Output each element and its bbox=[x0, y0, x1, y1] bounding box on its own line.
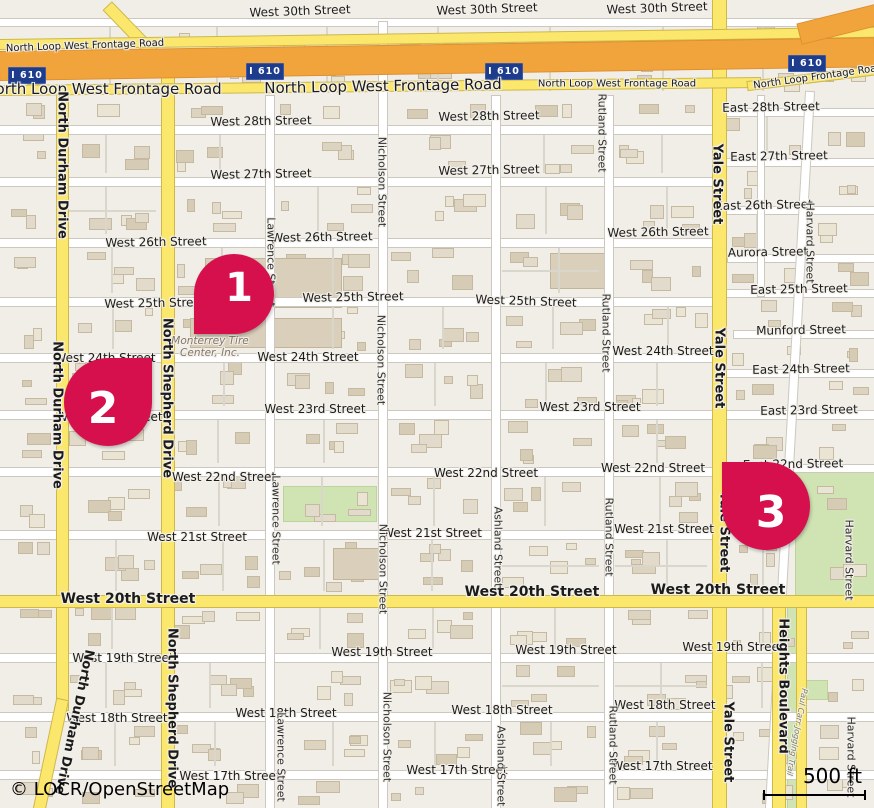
street-label-west-21st-street: West 21st Street bbox=[614, 522, 714, 536]
map-canvas[interactable]: I 610I 610I 610I 610West 30th StreetWest… bbox=[0, 0, 874, 808]
poi-label-line1: Monterrey Tire bbox=[171, 335, 248, 347]
building bbox=[29, 514, 44, 528]
building bbox=[452, 275, 473, 290]
street-label-yale-street: Yale Street bbox=[710, 144, 725, 225]
building bbox=[27, 433, 51, 445]
building bbox=[177, 264, 185, 278]
building bbox=[516, 214, 536, 228]
building bbox=[513, 502, 528, 512]
street-label-west-19th-street: West 19th Street bbox=[682, 640, 783, 654]
building bbox=[82, 747, 99, 759]
street-label-west-23rd-street: West 23rd Street bbox=[264, 402, 365, 416]
building bbox=[88, 633, 100, 646]
building bbox=[676, 307, 686, 317]
building bbox=[679, 512, 698, 523]
marker-number: 2 bbox=[88, 383, 119, 434]
building bbox=[620, 149, 638, 159]
marker-number: 3 bbox=[756, 487, 787, 538]
building bbox=[344, 749, 365, 757]
street-label-west-22nd-street: West 22nd Street bbox=[434, 466, 538, 480]
building bbox=[429, 137, 441, 150]
street-label-west-27th-street: West 27th Street bbox=[210, 166, 311, 182]
alley-road bbox=[550, 720, 552, 766]
building bbox=[651, 277, 671, 290]
building bbox=[628, 610, 651, 620]
street-label-harvard-street: Harvard Street bbox=[804, 202, 817, 283]
building bbox=[325, 382, 334, 394]
building bbox=[82, 144, 100, 157]
map-marker-3[interactable]: 3 bbox=[722, 462, 810, 550]
building bbox=[523, 257, 538, 268]
building bbox=[817, 486, 834, 494]
building bbox=[18, 542, 33, 553]
building bbox=[850, 272, 869, 286]
street-label-lawrence-street: Lawrence Street bbox=[270, 475, 283, 565]
street-label-west-17th-street: West 17th Street bbox=[406, 763, 507, 777]
street-label-ashland-street: Ashland Street bbox=[492, 507, 505, 588]
building bbox=[32, 751, 40, 764]
street-label-harvard-street: Harvard Street bbox=[843, 519, 856, 600]
building bbox=[37, 542, 50, 555]
building bbox=[739, 545, 748, 553]
building-large bbox=[333, 548, 381, 580]
building bbox=[25, 727, 36, 739]
building bbox=[461, 560, 472, 573]
street-label-west-17th-street: West 17th Street bbox=[611, 759, 712, 773]
street-label-north-loop-west-frontage-road: North Loop West Frontage Road bbox=[0, 80, 222, 98]
building bbox=[529, 546, 548, 556]
street-label-west-24th-street: West 24th Street bbox=[612, 344, 713, 358]
building bbox=[391, 488, 411, 496]
building bbox=[411, 444, 427, 453]
building bbox=[322, 142, 342, 151]
building bbox=[695, 313, 708, 327]
street-label-west-26th-street: West 26th Street bbox=[607, 224, 708, 240]
building bbox=[295, 375, 310, 388]
building bbox=[187, 199, 195, 212]
street-label-north-durham-drive: North Durham Drive bbox=[50, 341, 65, 489]
alley-road bbox=[502, 685, 599, 687]
building bbox=[78, 323, 91, 332]
building bbox=[24, 335, 33, 350]
alley-road bbox=[502, 565, 599, 567]
alley-road bbox=[319, 603, 321, 649]
street-label-west-26th-street: West 26th Street bbox=[105, 234, 206, 250]
building bbox=[557, 666, 575, 677]
building bbox=[182, 571, 199, 580]
street-label-west-23rd-street: West 23rd Street bbox=[539, 400, 640, 414]
building bbox=[408, 629, 426, 639]
building bbox=[26, 103, 42, 115]
building bbox=[832, 424, 846, 432]
building bbox=[298, 796, 320, 805]
street-label-north-durham-drive: North Durham Drive bbox=[55, 91, 70, 239]
building bbox=[525, 399, 538, 408]
building bbox=[630, 788, 653, 800]
building bbox=[287, 633, 305, 640]
building bbox=[134, 146, 150, 160]
alley-road bbox=[434, 720, 436, 766]
building bbox=[466, 332, 479, 342]
building bbox=[409, 339, 421, 349]
alley-road bbox=[545, 185, 547, 234]
building bbox=[135, 213, 149, 224]
building bbox=[647, 424, 664, 433]
building bbox=[662, 743, 677, 751]
building bbox=[849, 348, 857, 361]
building bbox=[820, 235, 833, 243]
street-label-west-20th-street: West 20th Street bbox=[651, 582, 786, 598]
map-marker-1[interactable]: 1 bbox=[194, 254, 274, 334]
building bbox=[316, 781, 339, 793]
building bbox=[504, 488, 523, 501]
building bbox=[304, 567, 321, 578]
building bbox=[520, 722, 543, 735]
alley-road bbox=[223, 361, 225, 406]
building bbox=[113, 690, 125, 705]
alley-road bbox=[332, 305, 334, 349]
route-shield-i610: I 610 bbox=[788, 55, 826, 72]
building bbox=[463, 612, 473, 620]
alley-road bbox=[323, 418, 325, 463]
street-label-west-19th-street: West 19th Street bbox=[331, 645, 432, 659]
building bbox=[639, 104, 659, 115]
building bbox=[202, 611, 215, 622]
building bbox=[736, 390, 745, 400]
building bbox=[843, 642, 852, 649]
building bbox=[545, 164, 559, 174]
building bbox=[617, 787, 629, 800]
street-label-west-25th-street: West 25th Street bbox=[302, 289, 403, 305]
alley-road bbox=[209, 661, 211, 708]
building bbox=[305, 504, 321, 517]
building bbox=[407, 270, 418, 283]
alley-road bbox=[105, 133, 107, 173]
scale-indicator: 500 ft bbox=[763, 764, 866, 800]
building bbox=[415, 787, 424, 795]
building bbox=[443, 328, 464, 342]
building bbox=[829, 381, 842, 390]
alley-road bbox=[615, 685, 707, 687]
building bbox=[562, 482, 581, 492]
marker-number: 1 bbox=[225, 265, 253, 311]
street-label-west-28th-street: West 28th Street bbox=[438, 108, 539, 124]
building bbox=[129, 737, 139, 745]
building bbox=[732, 353, 744, 366]
street-label-east-24th-street: East 24th Street bbox=[752, 361, 850, 377]
street-label-west-20th-street: West 20th Street bbox=[61, 591, 196, 607]
alley-road bbox=[434, 361, 436, 406]
street-label-west-19th-street: West 19th Street bbox=[515, 643, 616, 657]
building bbox=[445, 196, 454, 207]
building bbox=[247, 576, 260, 588]
street-label-west-30th-street: West 30th Street bbox=[436, 0, 538, 18]
road-rutland-street bbox=[605, 96, 613, 808]
building bbox=[33, 328, 42, 340]
building bbox=[650, 205, 664, 220]
alley-road bbox=[502, 270, 599, 272]
building bbox=[347, 613, 363, 623]
building bbox=[391, 793, 402, 800]
building bbox=[235, 432, 250, 444]
building bbox=[13, 695, 34, 705]
street-label-east-26th-street: East 26th Street bbox=[715, 197, 813, 213]
street-label-west-21st-street: West 21st Street bbox=[147, 530, 247, 544]
alley-road bbox=[111, 246, 113, 293]
road-ashland-street bbox=[492, 96, 500, 808]
building bbox=[23, 134, 44, 141]
building bbox=[391, 252, 411, 261]
building bbox=[236, 612, 260, 621]
building bbox=[37, 151, 46, 159]
building bbox=[470, 384, 483, 398]
building bbox=[561, 367, 582, 382]
building bbox=[622, 425, 639, 436]
building bbox=[852, 679, 865, 691]
building bbox=[508, 421, 529, 433]
alley-road bbox=[115, 538, 117, 591]
street-label-north-shepherd-drive: North Shepherd Drive bbox=[165, 628, 180, 788]
building bbox=[832, 302, 853, 312]
alley-road bbox=[442, 305, 444, 349]
building bbox=[114, 267, 135, 276]
alley-road bbox=[661, 133, 663, 173]
building bbox=[128, 489, 150, 499]
alley-road bbox=[431, 538, 433, 591]
street-label-west-25th-street: West 25th Street bbox=[104, 295, 205, 311]
street-label-rutland-street: Rutland Street bbox=[596, 93, 609, 172]
building bbox=[89, 218, 112, 230]
building bbox=[344, 693, 353, 706]
building bbox=[118, 555, 134, 569]
building bbox=[533, 742, 552, 754]
street-label-heights-boulevard: Heights Boulevard bbox=[776, 618, 791, 754]
building bbox=[213, 223, 236, 232]
alley-road bbox=[552, 305, 554, 349]
building bbox=[323, 106, 339, 119]
street-label-nicholson-street: Nicholson Street bbox=[376, 137, 389, 227]
street-label-west-24th-street: West 24th Street bbox=[257, 350, 358, 364]
building bbox=[685, 105, 695, 114]
street-label-east-23rd-street: East 23rd Street bbox=[760, 402, 858, 418]
building bbox=[20, 609, 39, 618]
street-label-lawrence-street: Lawrence Street bbox=[275, 712, 288, 802]
building bbox=[560, 164, 571, 172]
building bbox=[340, 676, 361, 685]
building bbox=[744, 188, 752, 199]
street-label-yale-street: Yale Street bbox=[721, 702, 736, 783]
building bbox=[548, 369, 561, 383]
building bbox=[212, 202, 221, 214]
building bbox=[838, 263, 855, 273]
alley-road bbox=[222, 538, 224, 591]
building bbox=[222, 211, 242, 219]
building bbox=[304, 740, 326, 750]
building bbox=[463, 194, 486, 207]
building bbox=[467, 375, 478, 386]
alley-road bbox=[111, 603, 113, 649]
building bbox=[186, 440, 197, 455]
building bbox=[136, 278, 154, 291]
street-label-north-loop-west-frontage-road: North Loop West Frontage Road bbox=[264, 75, 502, 97]
building bbox=[134, 726, 155, 737]
building bbox=[506, 316, 523, 327]
building bbox=[846, 132, 865, 146]
road-lawrence-street bbox=[266, 96, 274, 808]
map-marker-2[interactable]: 2 bbox=[64, 358, 152, 446]
building bbox=[761, 300, 777, 312]
building bbox=[560, 322, 583, 335]
building bbox=[435, 211, 444, 220]
building bbox=[819, 747, 839, 759]
street-label-rutland-street: Rutland Street bbox=[603, 497, 616, 576]
building bbox=[665, 436, 686, 448]
building bbox=[405, 364, 423, 378]
building bbox=[516, 665, 530, 677]
building bbox=[398, 740, 411, 748]
building bbox=[349, 736, 361, 744]
street-label-west-21st-street: West 21st Street bbox=[382, 526, 482, 540]
alley-road bbox=[544, 475, 546, 526]
alley-road bbox=[659, 475, 661, 526]
building bbox=[200, 564, 222, 576]
street-label-west-18th-street: West 18th Street bbox=[451, 703, 552, 717]
building bbox=[14, 257, 36, 268]
building bbox=[279, 571, 291, 580]
building bbox=[827, 498, 847, 510]
street-label-west-20th-street: West 20th Street bbox=[465, 584, 600, 600]
building bbox=[847, 185, 857, 194]
building bbox=[102, 451, 125, 460]
alley-road bbox=[433, 475, 435, 526]
building bbox=[457, 747, 470, 758]
building bbox=[463, 499, 478, 513]
street-label-west-26th-street: West 26th Street bbox=[271, 229, 372, 245]
alley-road bbox=[317, 185, 319, 234]
street-label-west-28th-street: West 28th Street bbox=[210, 113, 311, 129]
street-label-east-28th-street: East 28th Street bbox=[722, 99, 820, 115]
building bbox=[516, 341, 532, 349]
building bbox=[348, 509, 371, 516]
street-label-west-25th-street: West 25th Street bbox=[475, 292, 577, 310]
building bbox=[562, 104, 572, 117]
alley-road bbox=[656, 418, 658, 463]
street-label-nicholson-street: Nicholson Street bbox=[377, 524, 390, 614]
street-label-ashland-street: Ashland Street bbox=[495, 726, 508, 807]
building bbox=[407, 109, 428, 120]
building bbox=[423, 577, 443, 584]
building bbox=[752, 384, 774, 395]
building bbox=[444, 376, 453, 383]
building bbox=[334, 441, 343, 453]
street-label-nicholson-street: Nicholson Street bbox=[375, 315, 388, 405]
alley-road bbox=[217, 418, 219, 463]
building bbox=[820, 725, 838, 739]
alley-road bbox=[332, 246, 334, 293]
street-label-west-18th-street: West 18th Street bbox=[614, 698, 715, 712]
building bbox=[186, 507, 207, 517]
street-label-munford-street: Munford Street bbox=[756, 322, 846, 338]
scale-bar bbox=[763, 790, 866, 800]
alley-road bbox=[67, 210, 156, 212]
building bbox=[97, 104, 120, 117]
street-label-east-27th-street: East 27th Street bbox=[730, 148, 828, 164]
building bbox=[625, 550, 644, 558]
building bbox=[357, 187, 371, 195]
building bbox=[317, 686, 331, 701]
building bbox=[245, 556, 258, 570]
building bbox=[22, 450, 41, 458]
street-label-north-loop-west-frontage-road: North Loop West Frontage Road bbox=[538, 79, 696, 90]
building bbox=[554, 787, 577, 802]
building bbox=[108, 511, 123, 521]
building bbox=[853, 387, 869, 395]
alley-road bbox=[543, 133, 545, 173]
poi-label-tire-center: Monterrey Tire Center, Inc. bbox=[171, 335, 248, 359]
route-shield-i610: I 610 bbox=[246, 63, 284, 80]
street-label-nicholson-street: Nicholson Street bbox=[381, 692, 394, 782]
building bbox=[434, 420, 450, 435]
building bbox=[450, 625, 473, 638]
street-label-east-25th-street: East 25th Street bbox=[750, 281, 848, 297]
building bbox=[336, 423, 358, 434]
building bbox=[176, 150, 195, 163]
building bbox=[331, 671, 343, 683]
map-attribution: © LOCR/OpenStreetMap bbox=[10, 779, 229, 800]
alley-road bbox=[667, 305, 669, 349]
street-label-rutland-street: Rutland Street bbox=[607, 705, 620, 784]
alley-road bbox=[105, 661, 107, 708]
building bbox=[732, 676, 749, 683]
building bbox=[828, 132, 841, 146]
building bbox=[531, 694, 546, 702]
building bbox=[520, 449, 533, 462]
road-unnamed bbox=[758, 96, 764, 296]
building bbox=[465, 734, 483, 741]
building bbox=[144, 560, 154, 569]
alley-road bbox=[323, 538, 325, 591]
building bbox=[11, 209, 26, 216]
alley-road bbox=[432, 603, 434, 649]
building bbox=[115, 320, 131, 331]
building bbox=[306, 434, 321, 444]
building bbox=[347, 307, 358, 314]
building bbox=[566, 543, 577, 550]
street-label-west-22nd-street: West 22nd Street bbox=[601, 461, 705, 475]
building bbox=[348, 254, 369, 268]
building bbox=[587, 726, 596, 738]
building bbox=[87, 252, 106, 260]
building bbox=[75, 608, 84, 616]
building bbox=[642, 389, 664, 404]
building bbox=[115, 606, 136, 620]
building bbox=[630, 260, 653, 270]
alley-road bbox=[112, 305, 114, 349]
building bbox=[348, 388, 365, 396]
building bbox=[399, 423, 415, 435]
street-label-west-30th-street: West 30th Street bbox=[249, 2, 351, 20]
building bbox=[550, 561, 568, 574]
building bbox=[567, 205, 583, 220]
building bbox=[692, 266, 701, 278]
street-label-rutland-street: Rutland Street bbox=[600, 293, 613, 372]
building bbox=[573, 438, 592, 446]
alley-road bbox=[761, 661, 763, 708]
building bbox=[851, 631, 869, 639]
building bbox=[669, 496, 682, 507]
alley-road bbox=[332, 720, 334, 766]
building bbox=[25, 398, 47, 406]
